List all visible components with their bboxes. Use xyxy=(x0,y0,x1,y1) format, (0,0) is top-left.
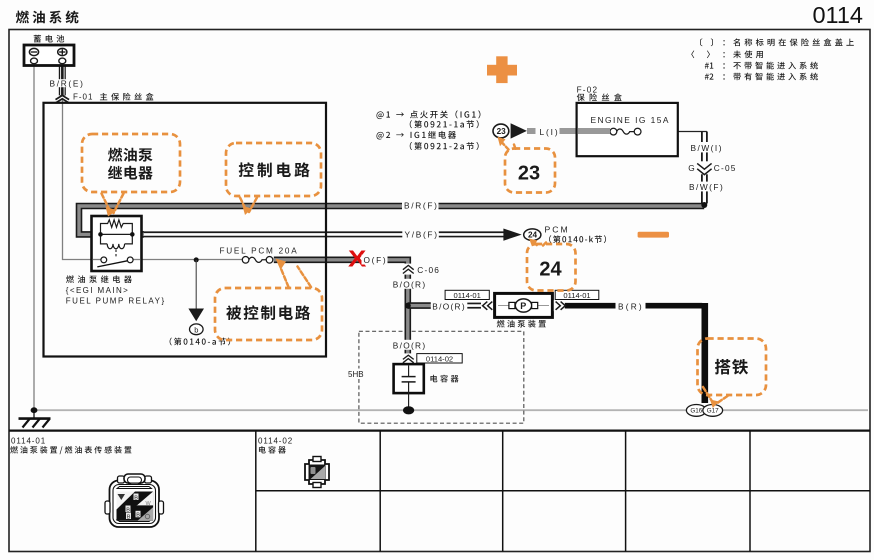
svg-text:W: W xyxy=(146,501,152,507)
svg-text:0114: 0114 xyxy=(812,2,863,28)
svg-text:0114-01: 0114-01 xyxy=(454,291,481,300)
svg-text:B/W(F): B/W(F) xyxy=(689,182,724,192)
svg-text:B/O(R): B/O(R) xyxy=(432,301,466,311)
svg-text:B: B xyxy=(126,507,130,513)
svg-text:B: B xyxy=(127,514,131,520)
svg-text:O(F): O(F) xyxy=(364,255,388,265)
svg-text:0114-01: 0114-01 xyxy=(11,436,46,445)
svg-text:23: 23 xyxy=(497,127,507,136)
svg-text:B/O(R): B/O(R) xyxy=(393,341,427,351)
svg-text:B: B xyxy=(136,513,140,519)
svg-text:B/R(F): B/R(F) xyxy=(404,201,439,211)
svg-text:24: 24 xyxy=(528,231,538,240)
svg-text:C-05: C-05 xyxy=(714,163,737,173)
svg-text:b: b xyxy=(194,325,198,334)
svg-text:B: B xyxy=(134,495,138,501)
svg-text:23: 23 xyxy=(518,162,540,184)
svg-text:24: 24 xyxy=(539,259,562,281)
svg-text:G16: G16 xyxy=(690,408,702,415)
svg-text:F-02: F-02 xyxy=(577,85,599,94)
svg-text:5HB: 5HB xyxy=(348,370,364,379)
svg-text:0114-02: 0114-02 xyxy=(258,436,293,445)
svg-text:Y/B(F): Y/B(F) xyxy=(405,229,439,239)
svg-text:L(I): L(I) xyxy=(540,127,560,137)
svg-text:{<EGI MAIN>: {<EGI MAIN> xyxy=(66,286,129,295)
svg-text:PCM: PCM xyxy=(545,225,570,235)
svg-text:FUEL PCM 20A: FUEL PCM 20A xyxy=(220,247,299,256)
svg-text:P: P xyxy=(520,301,526,311)
svg-text:G: G xyxy=(688,163,694,173)
svg-text:ENGINE IG 15A: ENGINE IG 15A xyxy=(591,115,670,125)
svg-text:0114-01: 0114-01 xyxy=(563,291,590,300)
svg-text:G17: G17 xyxy=(707,408,719,415)
svg-text:C-06: C-06 xyxy=(417,265,440,275)
svg-text:B/R(E): B/R(E) xyxy=(50,78,85,88)
svg-text:B/O(R): B/O(R) xyxy=(393,280,427,290)
svg-text:B/W(I): B/W(I) xyxy=(691,143,724,153)
svg-text:FUEL PUMP RELAY}: FUEL PUMP RELAY} xyxy=(66,296,166,305)
svg-text:0114-02: 0114-02 xyxy=(426,354,453,363)
svg-text:F-01: F-01 xyxy=(73,93,93,102)
svg-text:B(R): B(R) xyxy=(618,301,644,311)
